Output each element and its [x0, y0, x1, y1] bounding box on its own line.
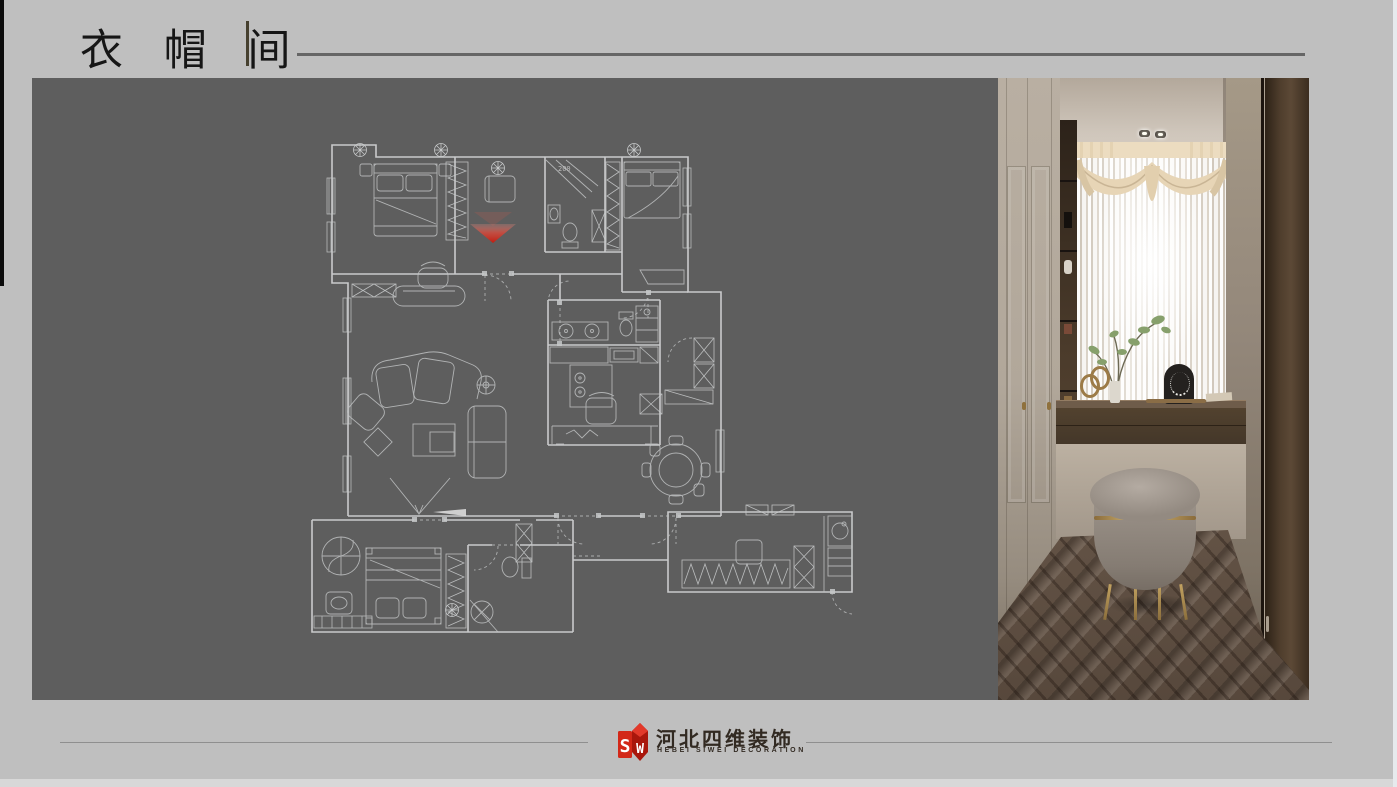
- footer-rule-left: [60, 742, 588, 743]
- plan-dim-label: 200: [558, 165, 571, 173]
- photo-door: [1264, 78, 1309, 700]
- cloakroom-photo: [998, 78, 1309, 700]
- floor-plan: 200: [300, 130, 880, 660]
- photo-vase: [1110, 381, 1120, 403]
- spotlight-icon: [1155, 131, 1166, 138]
- photo-valance: [1068, 140, 1236, 280]
- plan-bath2: [552, 306, 658, 342]
- plan-bed-master: [360, 164, 451, 236]
- bottom-edge-strip: [0, 779, 1397, 787]
- plan-chair: [418, 262, 448, 288]
- plan-bed-third: [322, 537, 441, 624]
- svg-text:W: W: [636, 742, 644, 757]
- plan-bath3: [470, 557, 531, 632]
- title-divider: [246, 21, 249, 66]
- company-name-en: HEBEI SIWEI DECORATION: [657, 747, 806, 754]
- plan-closets: [352, 210, 814, 588]
- plan-walls: [312, 145, 852, 632]
- left-edge-strip: [0, 0, 4, 286]
- footer-rule-right: [806, 742, 1332, 743]
- slide: { "header": { "title": "衣 帽 间" }, "plan"…: [0, 0, 1397, 787]
- plan-tv-console: [393, 286, 465, 306]
- top-rule: [297, 53, 1305, 56]
- cabinet-knob: [1047, 402, 1051, 410]
- necklace: [1170, 372, 1190, 396]
- plan-dining: [642, 436, 710, 504]
- door-handle: [1266, 616, 1269, 632]
- stool-leg: [1158, 584, 1161, 620]
- plan-doors: [414, 274, 852, 614]
- company-logo-icon: S W: [616, 721, 652, 765]
- page-title: 衣 帽 间: [80, 16, 306, 78]
- plan-bath-top: [546, 160, 598, 248]
- cabinet-knob: [1022, 402, 1026, 410]
- content-panel: 200: [32, 78, 1309, 700]
- plan-bed-second: [624, 162, 684, 284]
- spotlight-icon: [1139, 130, 1150, 137]
- svg-text:S: S: [620, 736, 631, 757]
- plan-furniture: [322, 160, 852, 632]
- plan-ceiling-light: [477, 376, 495, 394]
- plan-coffee-table: [413, 424, 455, 456]
- right-edge-strip: [1393, 0, 1397, 787]
- plan-sofa: [345, 352, 506, 478]
- camera-view-cone: [470, 212, 516, 243]
